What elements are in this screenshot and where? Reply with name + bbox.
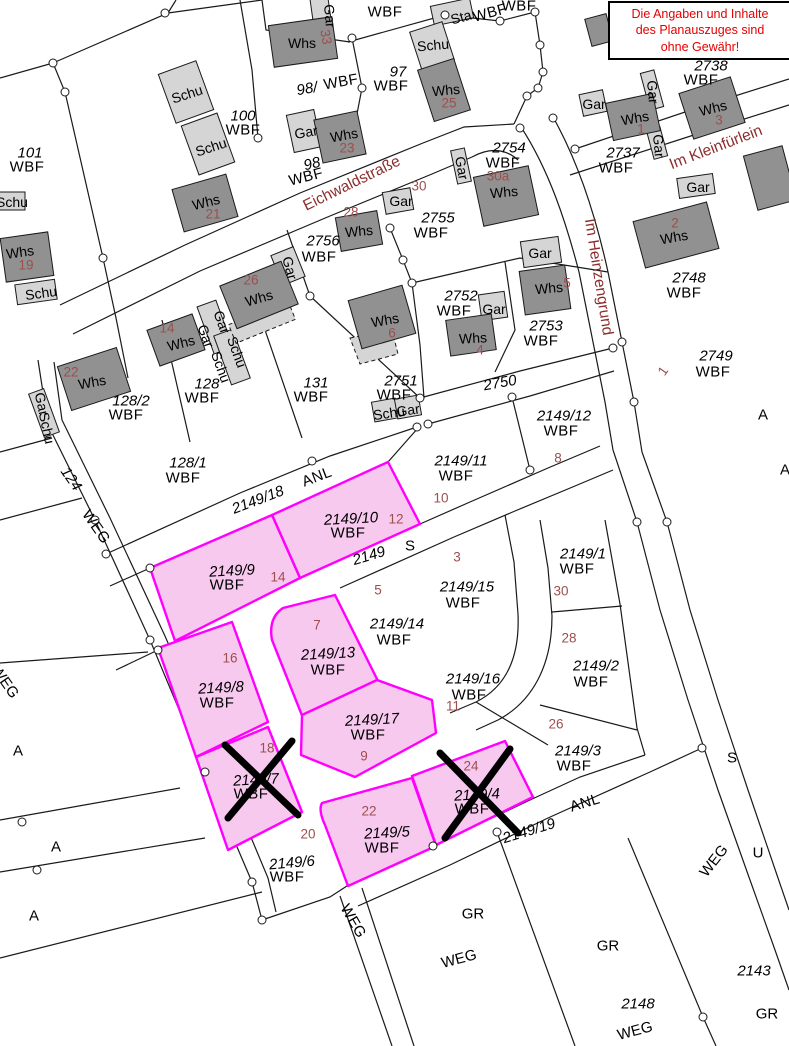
building-whs-shape	[519, 265, 571, 315]
disclaimer-line-1: Die Angaben und Inhalte	[612, 6, 788, 22]
highlighted-parcels	[150, 462, 533, 886]
building-schu-shape	[181, 113, 234, 175]
building-schu-shape	[158, 61, 213, 124]
building-schu-gar-shape	[29, 389, 60, 438]
building-whs-shape	[633, 202, 719, 268]
building-gar-shape	[579, 90, 607, 117]
building-whs-shape	[0, 232, 54, 282]
building-gar-shape	[520, 236, 561, 267]
building-gar-shape	[677, 174, 715, 199]
building-whs-shape	[418, 58, 471, 121]
building-sta-shape	[430, 0, 473, 26]
building-gar-shape	[382, 188, 413, 215]
disclaimer-box: Die Angaben und Inhalte des Planauszuges…	[608, 1, 789, 60]
building-whs-shape	[268, 17, 337, 67]
map-geometry	[0, 0, 789, 1046]
building-schu-shape	[0, 192, 25, 210]
building-schu-shape	[15, 279, 57, 304]
disclaimer-line-3: ohne Gewähr!	[612, 39, 788, 55]
disclaimer-line-2: des Planauszuges sind	[612, 22, 788, 38]
building-whs-shape	[314, 111, 366, 163]
building-whs-shape	[147, 314, 205, 366]
building-whs-shape	[172, 174, 238, 232]
building-whs-shape	[679, 77, 745, 139]
building-gar-shape	[451, 148, 472, 184]
building-whs-shape	[57, 348, 130, 411]
building-whs-shape	[743, 146, 789, 210]
buildings	[0, 0, 789, 437]
parcel-shape-2149-10	[272, 462, 420, 578]
cadastral-map: WBFGarWhs33StaWBFWBFSchu97WBFWhs2598/WBF…	[0, 0, 789, 1046]
building-whs-shape	[446, 314, 497, 356]
building-whs-shape	[473, 166, 538, 227]
building-whs-shape	[335, 211, 382, 252]
